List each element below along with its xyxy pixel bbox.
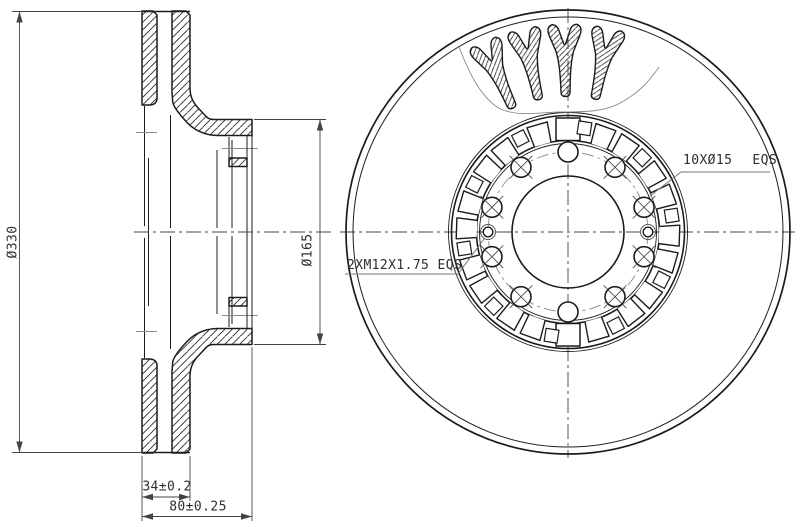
bolt-holes-qty: 10XØ15: [683, 153, 732, 168]
cooling-vane: [507, 26, 555, 103]
bolt-holes-note: EQS: [752, 153, 777, 168]
cooling-vane: [548, 24, 582, 97]
dimension-lines: [12, 12, 326, 522]
dim-outer-diameter-label: Ø330: [6, 226, 21, 259]
dim-hat-diameter-label: Ø165: [301, 234, 316, 267]
brake-disc-technical-drawing: Ø330 Ø165 34±0.2 80±0.25 10XØ15EQS 2XM12…: [0, 0, 800, 527]
section-lower-half: [136, 236, 258, 453]
front-view: [340, 8, 795, 458]
bolt-holes-callout: 10XØ15EQS: [683, 153, 777, 168]
thread-hole: [483, 227, 493, 237]
section-upper-half: [136, 11, 258, 228]
dim-total-width-label: 80±0.25: [169, 500, 227, 515]
dim-ring-thickness-label: 34±0.2: [142, 480, 191, 495]
bolt-hole: [558, 142, 578, 162]
cooling-vane: [579, 25, 626, 102]
bolt-hole: [558, 302, 578, 322]
cross-section-view: [134, 11, 332, 453]
thread-hole: [643, 227, 653, 237]
thread-holes-callout: 2XM12X1.75 EQS: [347, 258, 462, 273]
